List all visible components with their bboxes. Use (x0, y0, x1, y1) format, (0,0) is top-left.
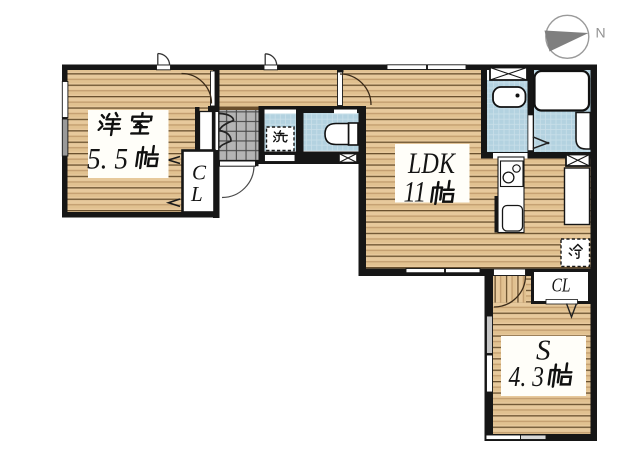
svg-text:N: N (596, 25, 606, 41)
svg-text:5. 5: 5. 5 (87, 143, 128, 176)
svg-text:4. 3: 4. 3 (509, 361, 545, 393)
svg-text:L: L (190, 182, 203, 206)
svg-text:11: 11 (404, 176, 427, 209)
svg-text:C: C (192, 161, 207, 185)
svg-text:CL: CL (552, 275, 571, 297)
